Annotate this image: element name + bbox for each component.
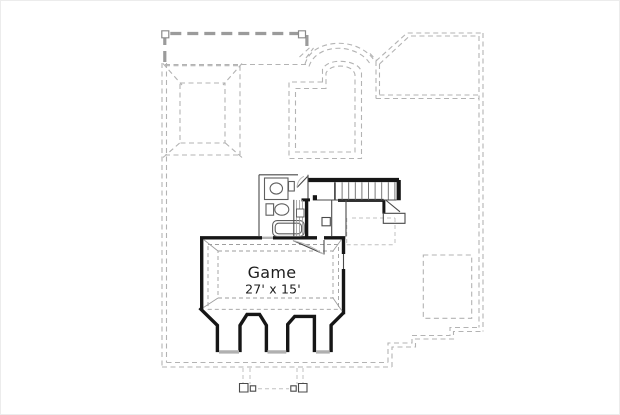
porch-column-squares xyxy=(240,384,308,393)
stair-edges xyxy=(317,182,405,236)
toilet-tank xyxy=(266,204,274,215)
arch-inner-arc xyxy=(309,48,370,66)
staircase xyxy=(309,180,406,237)
attic-arc-connector xyxy=(300,46,314,59)
upper-roof-inner xyxy=(380,36,480,95)
room-label-game: Game xyxy=(248,263,297,282)
stair-walls xyxy=(309,180,400,200)
bathtub-inner xyxy=(275,223,301,234)
stair-wall-stub xyxy=(313,195,317,200)
upper-roof-polygon xyxy=(370,33,483,99)
floor-plan: Game 27' x 15' xyxy=(0,0,620,415)
footprint-inner-line xyxy=(167,36,480,363)
arch-outer-arc xyxy=(305,43,375,64)
attic-corner-markers xyxy=(162,31,306,38)
stair-roof-dashes xyxy=(347,218,395,245)
arched-room-inner xyxy=(296,66,356,152)
stair-treads xyxy=(336,182,395,200)
arched-room-outer xyxy=(289,61,362,158)
stair-lower-walls xyxy=(338,200,384,213)
floor-plan-page: Game 27' x 15' xyxy=(0,0,620,415)
hip-roof-outline xyxy=(163,64,242,158)
sink xyxy=(270,183,282,194)
right-roof-rect xyxy=(423,255,471,318)
porch-columns xyxy=(240,368,308,392)
laundry-chute xyxy=(297,209,305,217)
vanity-shelf xyxy=(289,182,295,192)
bathroom xyxy=(259,175,310,237)
upper-roof-outer xyxy=(370,33,483,99)
hall-fixture xyxy=(322,218,330,226)
hip-roof-lines xyxy=(163,64,242,158)
room-dimensions-game: 27' x 15' xyxy=(245,282,301,297)
arched-roof-outline xyxy=(289,43,375,158)
toilet-bowl xyxy=(275,204,289,215)
attic-dashed-line xyxy=(165,34,307,63)
attic-dashed-outline xyxy=(162,31,314,62)
